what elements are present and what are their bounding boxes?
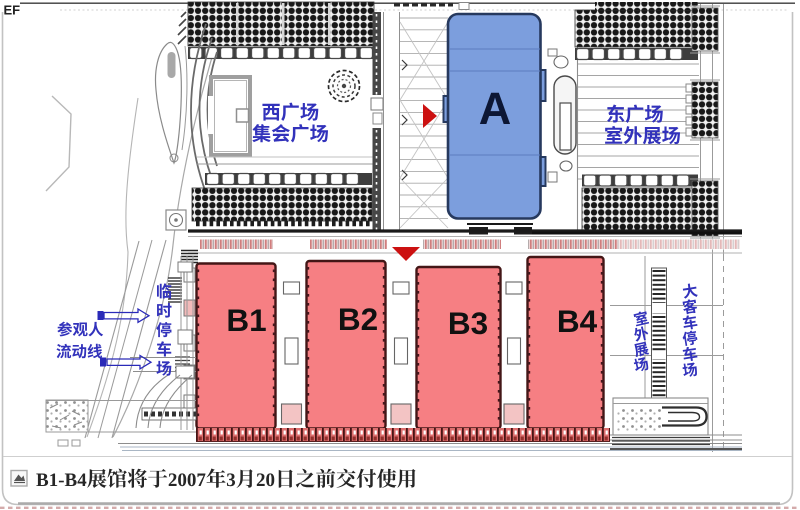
svg-text:A: A bbox=[479, 83, 512, 134]
svg-text:EF: EF bbox=[4, 3, 21, 18]
svg-text:B3: B3 bbox=[448, 305, 488, 341]
svg-text:B1: B1 bbox=[226, 302, 266, 338]
svg-text:B4: B4 bbox=[557, 303, 598, 339]
svg-text:B2: B2 bbox=[338, 301, 378, 337]
